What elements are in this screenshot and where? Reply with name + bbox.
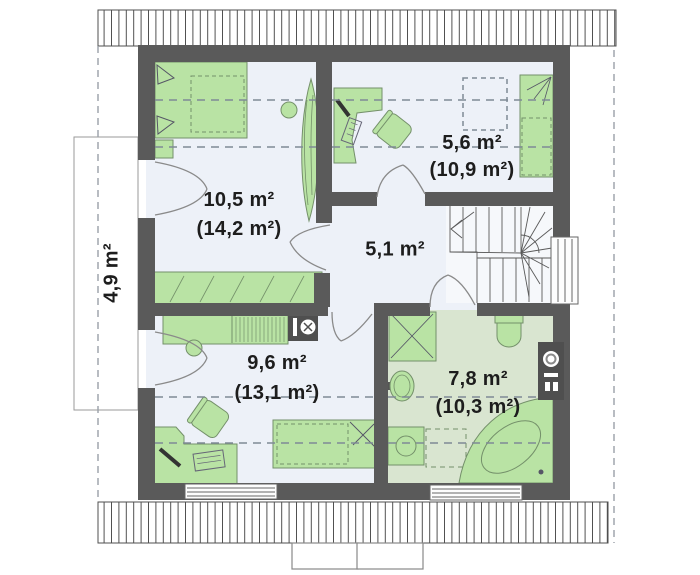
window-icon: [185, 484, 277, 499]
window-icon: [430, 485, 522, 500]
hall-area-label: 5,1 m²: [365, 236, 425, 265]
dresser-icon: [288, 313, 318, 341]
nightstand-icon: [155, 140, 173, 158]
room-105-area-label: 10,5 m² (14,2 m²): [197, 186, 282, 244]
area-total: (13,1 m²): [235, 378, 320, 408]
bathroom-area-label: 7,8 m² (10,3 m²): [436, 365, 521, 421]
area-usable: 7,8 m²: [448, 368, 508, 390]
stool-icon: [281, 102, 297, 118]
toilet-icon: [495, 313, 523, 347]
cabinet-icon: [163, 315, 288, 344]
shower-icon: [389, 312, 436, 361]
chimney-outline: [357, 543, 423, 569]
stair-window-icon: [551, 237, 578, 304]
area-usable: 9,6 m²: [247, 352, 307, 374]
water-heater-icon: [538, 342, 564, 400]
area-total: (10,9 m²): [430, 157, 515, 184]
area-usable: 10,5 m²: [203, 189, 274, 211]
area-total: (14,2 m²): [197, 215, 282, 244]
floor-plan-canvas: 10,5 m² (14,2 m²) 5,6 m² (10,9 m²) 5,1 m…: [0, 0, 700, 575]
room-96-area-label: 9,6 m² (13,1 m²): [235, 348, 320, 408]
area-total: (10,3 m²): [436, 393, 521, 421]
area-usable: 5,6 m²: [442, 132, 502, 154]
single-bed-icon: [273, 420, 377, 468]
room-56-area-label: 5,6 m² (10,9 m²): [430, 130, 515, 184]
area-usable: 5,1 m²: [365, 239, 425, 261]
chimney-outline: [292, 543, 358, 569]
wardrobe-icon: [153, 272, 322, 305]
single-bed-icon: [520, 75, 553, 177]
area-usable: 4,9 m²: [101, 243, 123, 303]
storage-area-label: 4,9 m²: [98, 243, 127, 303]
